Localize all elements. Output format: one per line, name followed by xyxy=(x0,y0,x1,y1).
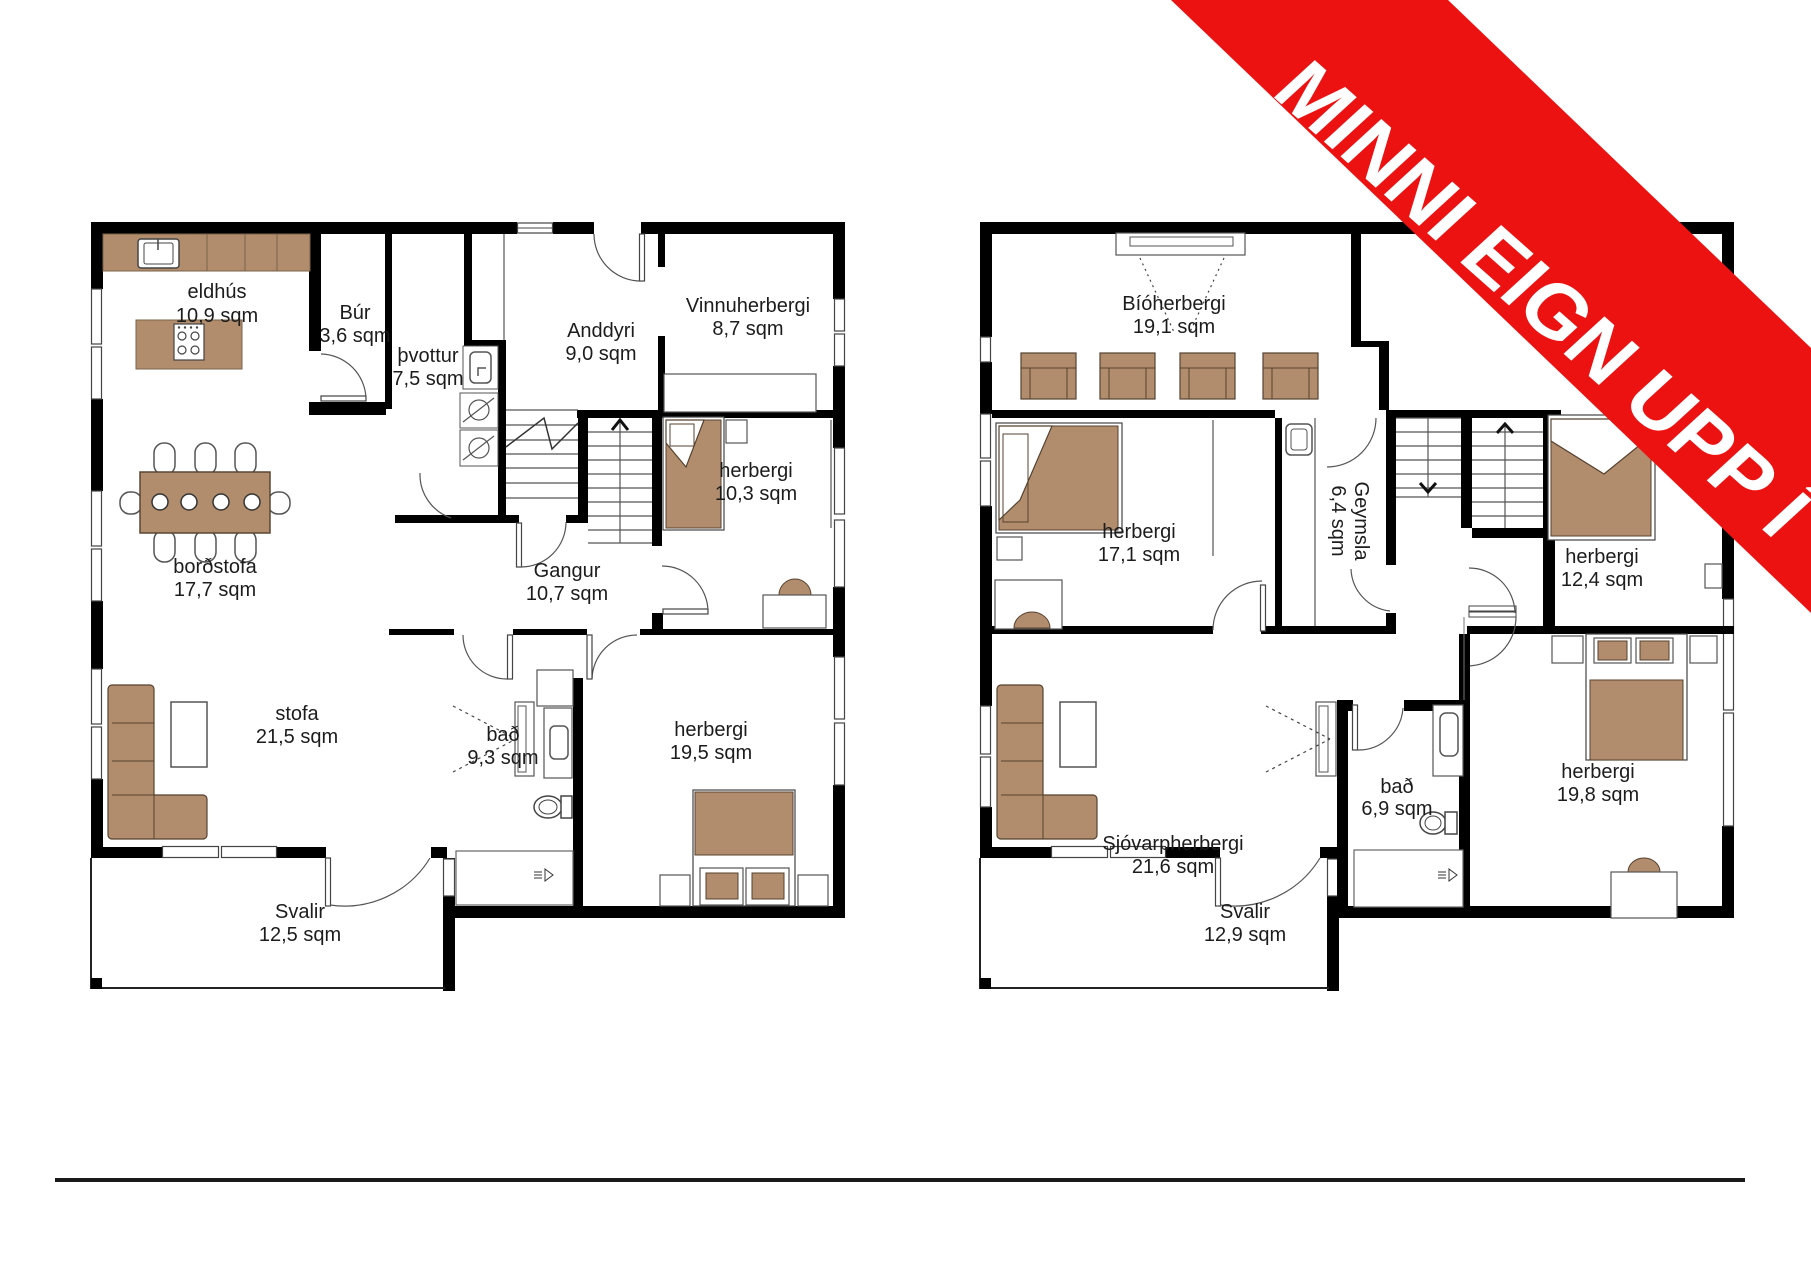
svg-text:21,6 sqm: 21,6 sqm xyxy=(1132,856,1214,878)
svg-text:8,7 sqm: 8,7 sqm xyxy=(712,318,783,340)
svg-text:herbergi: herbergi xyxy=(1102,521,1175,543)
svg-text:Svalir: Svalir xyxy=(1220,901,1270,923)
svg-text:Gangur: Gangur xyxy=(534,560,601,582)
svg-text:3,6 sqm: 3,6 sqm xyxy=(319,325,390,347)
svg-text:Búr: Búr xyxy=(339,302,370,324)
svg-text:herbergi: herbergi xyxy=(1561,761,1634,783)
svg-text:6,9 sqm: 6,9 sqm xyxy=(1361,798,1432,820)
svg-text:10,7 sqm: 10,7 sqm xyxy=(526,583,608,605)
svg-text:17,7 sqm: 17,7 sqm xyxy=(174,579,256,601)
svg-text:Sjóvarpherbergi: Sjóvarpherbergi xyxy=(1102,833,1243,855)
svg-text:bað: bað xyxy=(486,724,519,746)
svg-text:9,3 sqm: 9,3 sqm xyxy=(467,747,538,769)
svg-text:herbergi: herbergi xyxy=(674,719,747,741)
svg-text:borðstofa: borðstofa xyxy=(173,556,257,578)
svg-text:10,9 sqm: 10,9 sqm xyxy=(176,305,258,327)
svg-text:herbergi: herbergi xyxy=(719,460,792,482)
svg-text:19,1 sqm: 19,1 sqm xyxy=(1133,316,1215,338)
svg-text:þvottur: þvottur xyxy=(397,345,458,367)
svg-text:10,3 sqm: 10,3 sqm xyxy=(715,483,797,505)
svg-text:stofa: stofa xyxy=(275,703,319,725)
svg-text:6,4 sqm: 6,4 sqm xyxy=(1327,485,1349,556)
svg-text:12,9 sqm: 12,9 sqm xyxy=(1204,924,1286,946)
svg-text:Svalir: Svalir xyxy=(275,901,325,923)
svg-text:bað: bað xyxy=(1380,776,1413,798)
svg-text:Bíóherbergi: Bíóherbergi xyxy=(1122,293,1225,315)
svg-text:17,1 sqm: 17,1 sqm xyxy=(1098,544,1180,566)
svg-text:19,8 sqm: 19,8 sqm xyxy=(1557,784,1639,806)
svg-text:12,4 sqm: 12,4 sqm xyxy=(1561,569,1643,591)
svg-text:19,5 sqm: 19,5 sqm xyxy=(670,742,752,764)
svg-text:9,0 sqm: 9,0 sqm xyxy=(565,343,636,365)
svg-text:7,5 sqm: 7,5 sqm xyxy=(392,368,463,390)
svg-text:Geymsla: Geymsla xyxy=(1350,482,1372,562)
svg-text:12,5 sqm: 12,5 sqm xyxy=(259,924,341,946)
svg-text:herbergi: herbergi xyxy=(1565,546,1638,568)
svg-text:Anddyri: Anddyri xyxy=(567,320,635,342)
svg-text:21,5 sqm: 21,5 sqm xyxy=(256,726,338,748)
svg-text:Vinnuherbergi: Vinnuherbergi xyxy=(686,295,810,317)
svg-text:eldhús: eldhús xyxy=(188,281,247,303)
